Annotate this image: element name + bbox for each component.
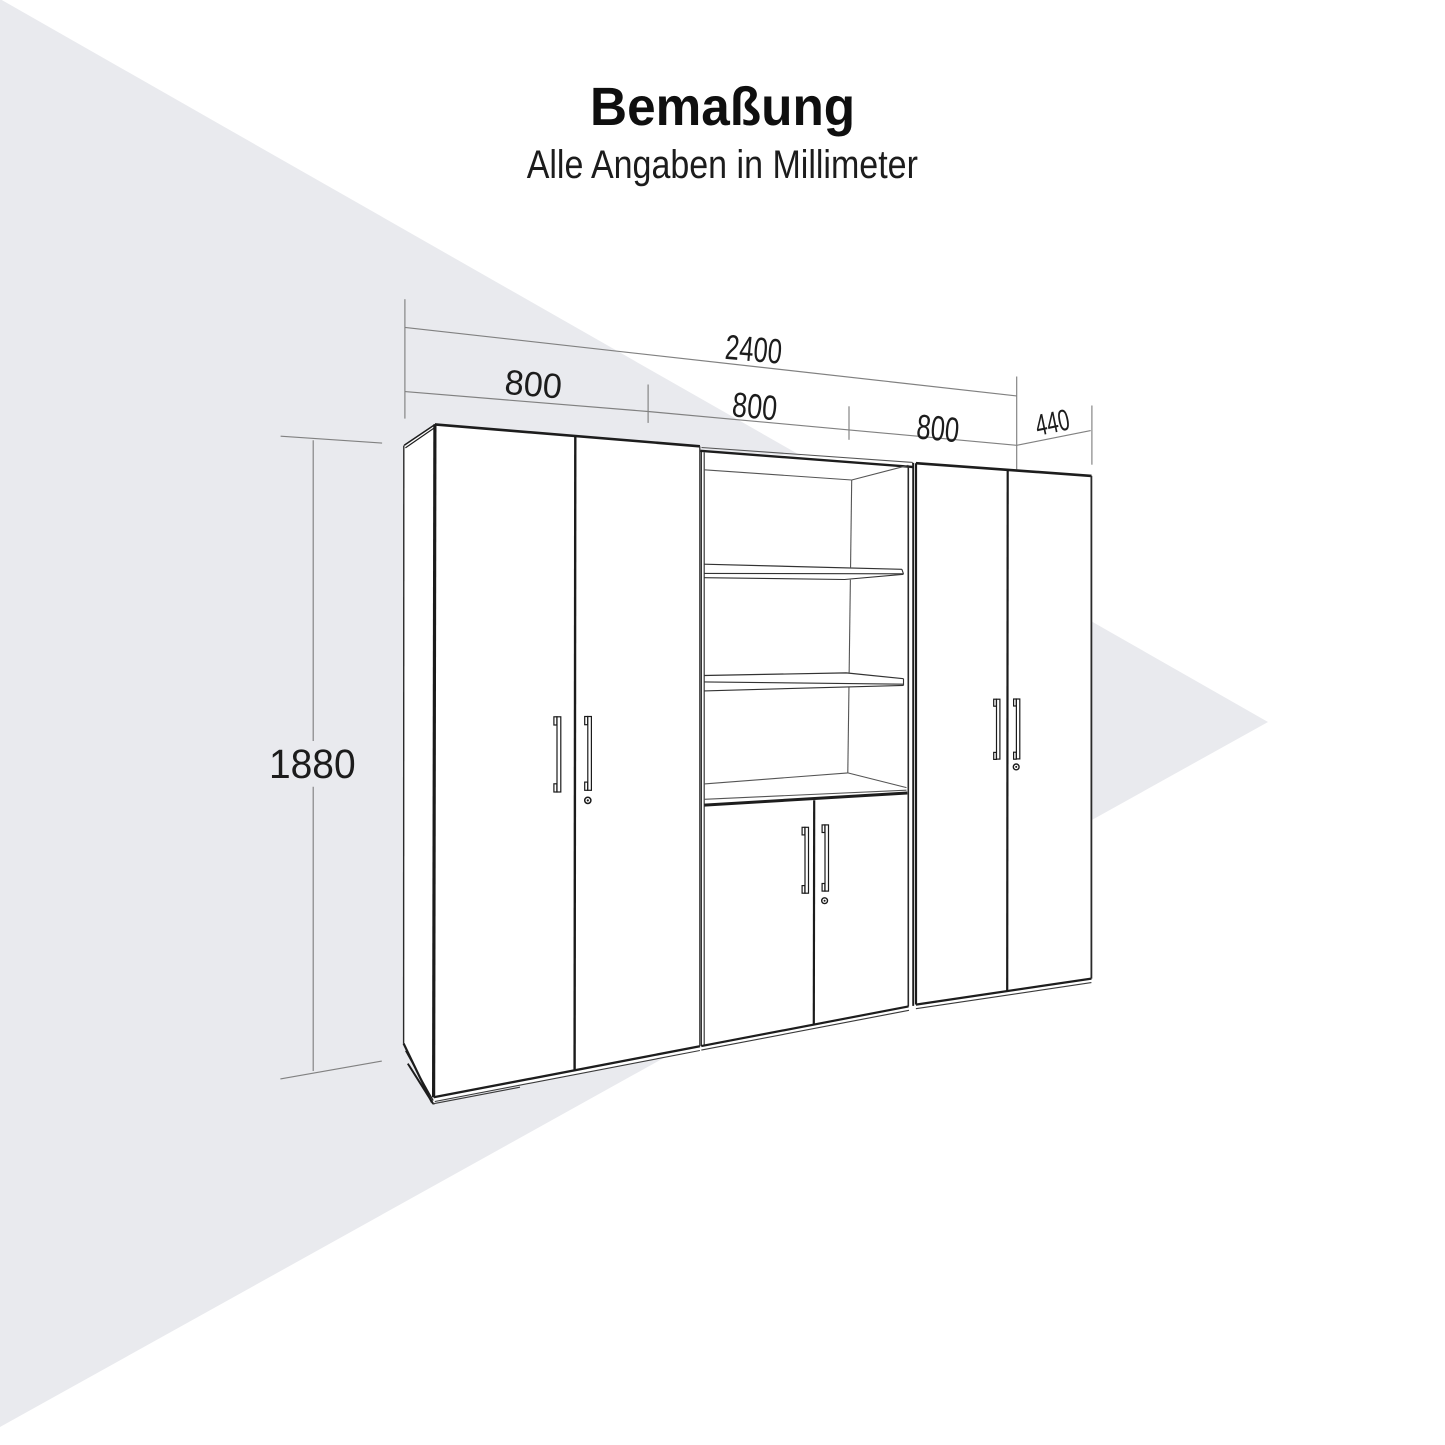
svg-text:800: 800 (915, 407, 961, 450)
svg-text:Alle Angaben in Millimeter: Alle Angaben in Millimeter (527, 143, 918, 187)
svg-text:800: 800 (503, 363, 563, 407)
svg-text:2400: 2400 (724, 328, 784, 372)
svg-text:800: 800 (731, 385, 779, 428)
svg-text:1880: 1880 (269, 741, 356, 787)
svg-text:Bemaßung: Bemaßung (590, 77, 855, 137)
svg-text:440: 440 (1033, 404, 1073, 443)
